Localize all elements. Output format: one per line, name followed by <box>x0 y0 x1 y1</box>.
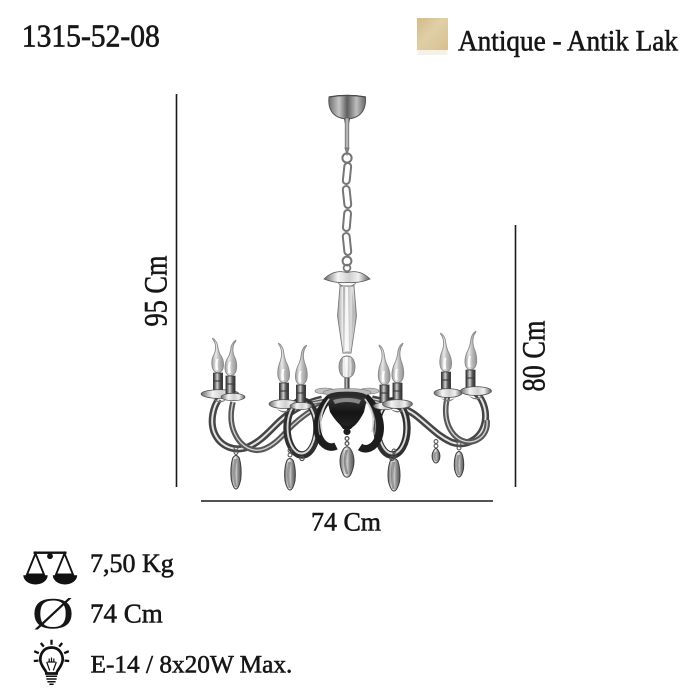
svg-text:Ø: Ø <box>32 589 74 638</box>
svg-text:74 Cm: 74 Cm <box>311 507 381 536</box>
svg-text:95 Cm: 95 Cm <box>139 255 175 326</box>
svg-text:E-14 / 8x20W Max.: E-14 / 8x20W Max. <box>91 651 293 679</box>
svg-text:7,50 Kg: 7,50 Kg <box>90 549 174 578</box>
svg-text:74 Cm: 74 Cm <box>90 598 163 628</box>
svg-text:1315-52-08: 1315-52-08 <box>22 17 160 53</box>
svg-text:80 Cm: 80 Cm <box>517 320 553 391</box>
svg-text:Antique - Antik Lak: Antique - Antik Lak <box>458 26 678 58</box>
